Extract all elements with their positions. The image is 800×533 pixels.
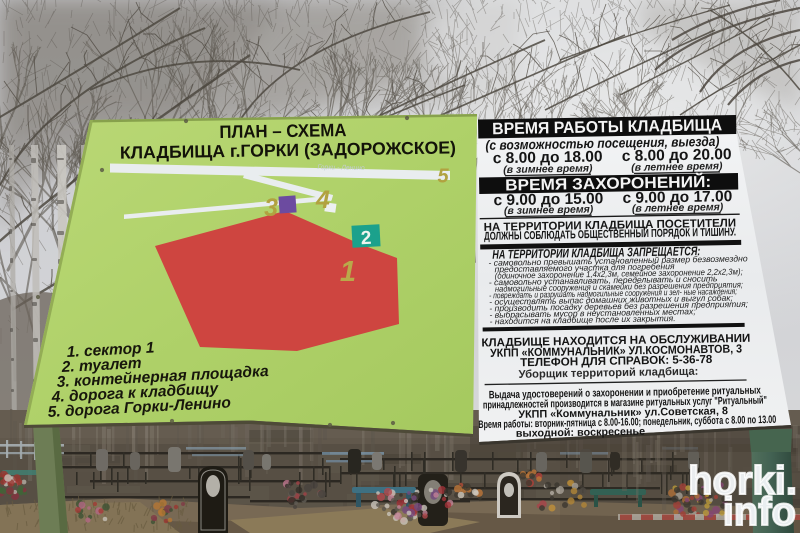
svg-text:выходной: воскресенье: выходной: воскресенье (516, 426, 645, 440)
svg-text:3: 3 (264, 194, 278, 222)
svg-text:info: info (723, 490, 796, 533)
svg-text:2: 2 (360, 228, 372, 250)
svg-text:4: 4 (315, 186, 330, 214)
svg-text:Горки - Ленино: Горки - Ленино (317, 164, 365, 172)
svg-text:5: 5 (437, 166, 449, 188)
svg-text:1: 1 (340, 256, 356, 288)
